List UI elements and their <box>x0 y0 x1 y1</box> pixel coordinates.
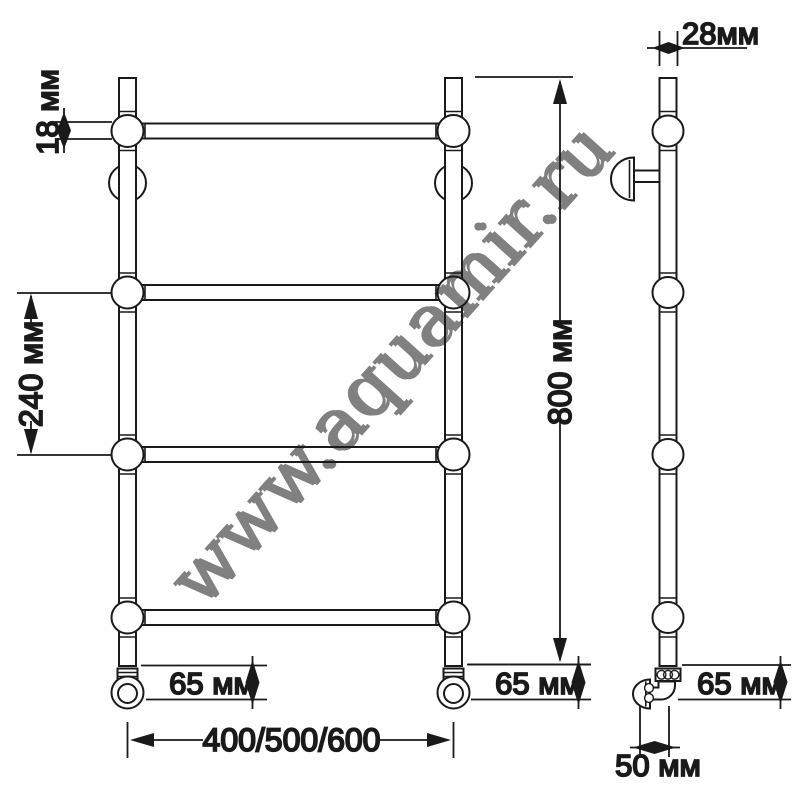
dim-width-options: 400/500/600 <box>128 722 454 758</box>
rung-1 <box>136 124 445 139</box>
dim-rung-spacing-label: 240 мм <box>13 321 49 427</box>
side-foot-elbow <box>633 669 681 709</box>
side-post <box>660 78 677 666</box>
dim-overall-height-label: 800 мм <box>542 319 578 425</box>
dim-side-width: 28мм <box>647 16 759 66</box>
dim-tube-diameter-label: 18 мм <box>30 69 65 155</box>
towel-rail-drawing: 18 мм 240 мм 800 мм 28мм 65 мм <box>0 0 800 800</box>
foot-right <box>438 669 470 709</box>
dim-side-width-label: 28мм <box>682 16 759 51</box>
dim-foot-side-label: 65 мм <box>697 666 783 701</box>
right-post <box>445 78 462 666</box>
dim-foot-left-label: 65 мм <box>169 666 255 701</box>
dim-wall-offset: 50 мм <box>615 706 701 783</box>
left-post <box>119 78 136 666</box>
foot-left <box>112 669 144 709</box>
dim-foot-left: 65 мм <box>141 656 267 709</box>
dim-foot-right: 65 мм <box>468 656 591 709</box>
rung-4 <box>136 610 445 625</box>
dim-tube-diameter: 18 мм <box>30 69 112 155</box>
drawing-canvas: 18 мм 240 мм 800 мм 28мм 65 мм <box>0 0 800 800</box>
dim-foot-side: 65 мм <box>678 656 791 709</box>
dim-width-options-label: 400/500/600 <box>203 722 381 758</box>
dim-wall-offset-label: 50 мм <box>615 748 701 783</box>
dim-foot-right-label: 65 мм <box>495 666 581 701</box>
dim-rung-spacing: 240 мм <box>13 293 112 455</box>
